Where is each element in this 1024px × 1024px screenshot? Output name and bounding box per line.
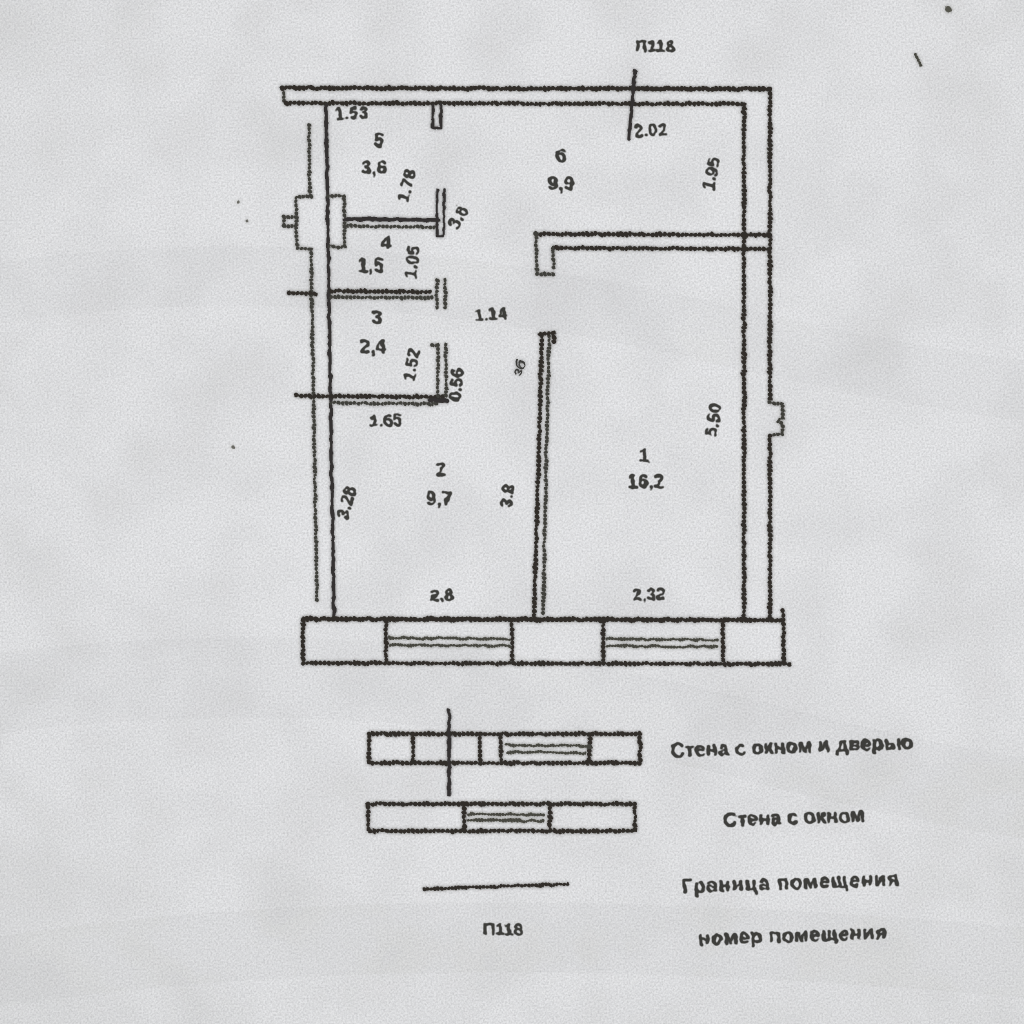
svg-text:П118: П118 <box>483 920 523 939</box>
svg-text:3,6: 3,6 <box>361 158 387 179</box>
svg-text:1.53: 1.53 <box>334 103 368 124</box>
svg-text:3: 3 <box>372 308 383 329</box>
svg-text:4: 4 <box>381 233 392 254</box>
svg-text:16,2: 16,2 <box>628 472 665 493</box>
svg-text:П118: П118 <box>635 37 675 56</box>
svg-text:5: 5 <box>374 131 385 152</box>
svg-text:1.65: 1.65 <box>369 410 403 431</box>
svg-text:2,4: 2,4 <box>360 337 387 358</box>
svg-text:0.56: 0.56 <box>446 367 468 402</box>
svg-text:3.8: 3.8 <box>496 483 519 510</box>
svg-text:1,5: 1,5 <box>358 256 385 277</box>
svg-text:2: 2 <box>436 460 447 481</box>
svg-text:1.14: 1.14 <box>473 304 508 325</box>
svg-text:9,7: 9,7 <box>426 489 452 510</box>
svg-text:2.02: 2.02 <box>633 120 667 141</box>
svg-text:6: 6 <box>556 146 567 167</box>
svg-text:2.8: 2.8 <box>430 586 454 606</box>
svg-text:1: 1 <box>639 446 650 467</box>
svg-text:9,9: 9,9 <box>548 174 574 195</box>
svg-text:2,32: 2,32 <box>632 584 666 604</box>
svg-text:1.05: 1.05 <box>401 245 424 280</box>
